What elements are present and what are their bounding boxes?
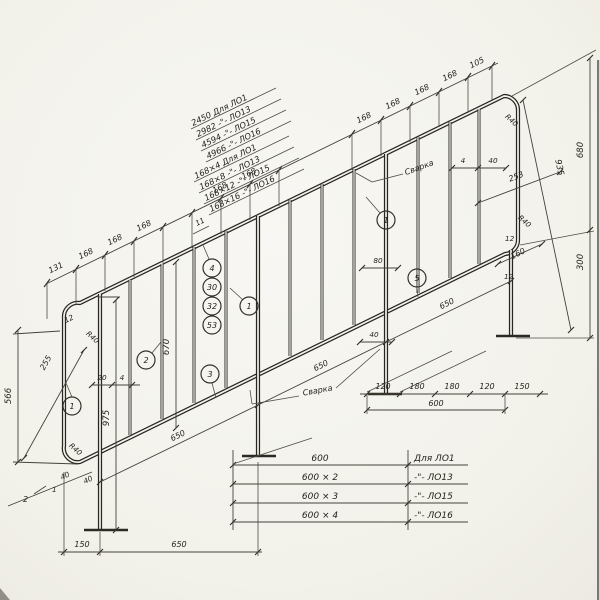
top-chain-dim-7: 168 [384,96,402,111]
bottom-chain-dim-3: 120 [479,382,494,391]
top-chain-dim-0: 131 [47,260,65,275]
dim-566: 566 [4,387,14,404]
dim-150-bottomleft: 150 [74,540,89,549]
dim-12-right2: 12 [505,234,515,243]
dim-650-bottomleft: 650 [171,540,186,549]
module-table: 600 600 × 2 600 × 3 600 × 4 Для ЛО1 -"- … [302,454,455,521]
dim-600-span: 600 [428,399,443,408]
dim-40-mid: 40 [369,330,379,339]
right-extension-fan [512,50,596,338]
top-chain-dim-8: 168 [413,82,431,97]
module-ref-3: -"- ЛО16 [414,511,453,521]
callout-30: 30 [207,283,217,292]
callout-2: 2 [143,356,148,365]
callout-1-top: 1 [383,216,388,225]
top-chain-dim-6: 168 [355,110,373,125]
section-mark-2: 2 [23,495,28,504]
dim-975: 975 [102,410,112,426]
callout-1-left: 1 [69,402,74,411]
scan-edge-right [597,60,599,600]
dim-4a: 4 [120,373,125,382]
module-ref-2: -"- ЛО15 [414,492,453,502]
dim-40-bl1: 40 [59,470,72,482]
callout-53: 53 [207,321,217,330]
top-chain-dim-2: 168 [106,232,124,247]
callout-3: 3 [207,370,212,379]
scan-blot-corner [0,588,10,600]
top-chain-dim-10: 105 [468,55,486,70]
module-table-leader [233,438,312,464]
callout-5: 5 [414,274,419,283]
dim-680: 680 [576,142,586,158]
module-ref-1: -"- ЛО13 [414,473,453,483]
variant-tables: 2450 Для ЛО1 2982 -"- ЛО13 4594 -"- ЛО15… [189,92,276,214]
drawing-sheet: 131 168 168 168 168 168 168 168 168 168 … [0,0,600,600]
section-trace [8,472,92,506]
section-mark-1: 1 [52,485,57,494]
top-chain-dim-1: 168 [77,246,95,261]
dim-255: 255 [38,354,53,372]
dim-4b: 4 [461,156,466,165]
bottom-chain-dim-0: 120 [375,382,390,391]
dim-80: 80 [373,256,383,265]
module-ref-0: Для ЛО1 [413,454,455,464]
radius-r40-bottomleft: R40 [67,441,84,458]
top-chain-dim-9: 168 [441,68,459,83]
dim-11: 11 [194,216,206,228]
sub-dim-11-line [193,226,209,234]
dim-935-line [523,100,571,330]
dim-566-line [13,330,78,464]
bottom-chain-dim-4: 150 [514,382,529,391]
bottom-left-extensions [64,462,258,556]
weld-note-bottom: Сварка [302,383,333,397]
dim-670: 670 [162,339,172,355]
dim-160: 160 [509,246,527,261]
technical-drawing: 131 168 168 168 168 168 168 168 168 168 … [0,0,600,600]
bottom-chain-dim-1: 180 [409,382,424,391]
dim-300: 300 [576,254,586,270]
dim-20: 20 [97,373,107,382]
top-chain-dim-3: 168 [135,218,153,233]
module-value-0: 600 [311,454,328,464]
module-value-3: 600 × 4 [302,511,338,521]
bottom-chain-dim-2: 180 [444,382,459,391]
dimension-labels: 131 168 168 168 168 168 168 168 168 168 … [4,55,586,549]
callout-1-mid: 1 [246,302,251,311]
module-value-2: 600 × 3 [302,492,338,502]
callout-32: 32 [207,302,217,311]
dim-12-right1: 12 [504,272,514,281]
callout-4: 4 [209,264,214,273]
dim-40-topright: 40 [488,156,498,165]
module-value-1: 600 × 2 [302,473,338,483]
